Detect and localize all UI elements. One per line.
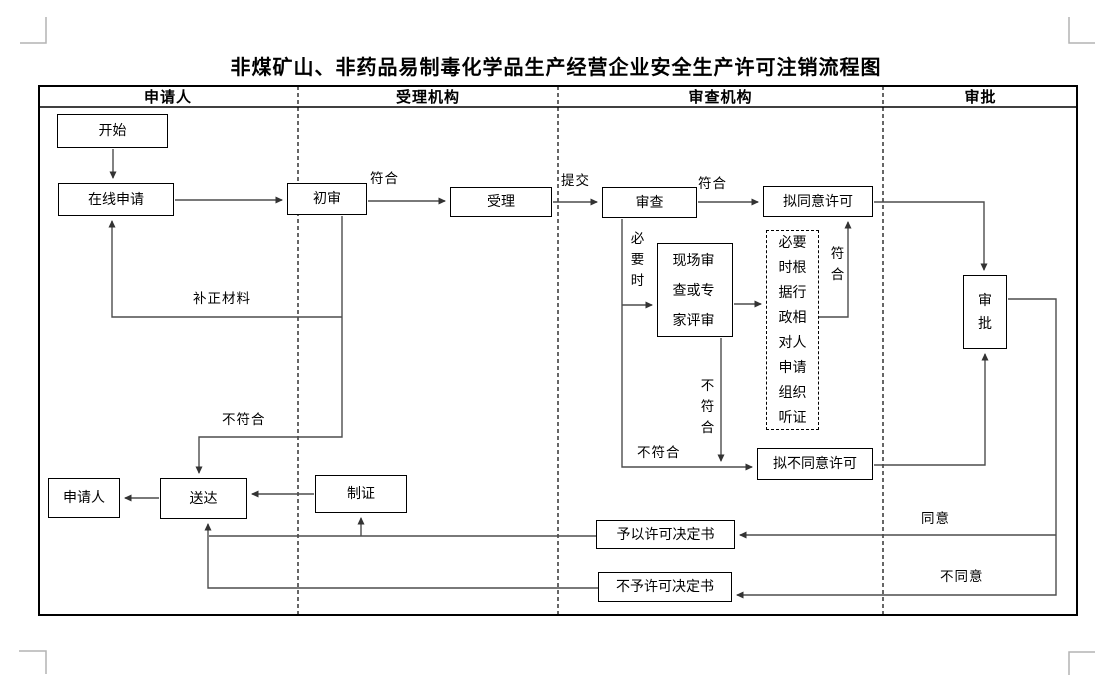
edge-label-not-conform-3: 不符合 — [222, 408, 266, 428]
node-applicant: 申请人 — [48, 478, 120, 518]
arrow-preliminary-notconform-to-deliver — [199, 216, 342, 473]
crop-mark-top-left — [20, 17, 46, 43]
edge-label-disagree: 不同意 — [940, 565, 984, 585]
node-deny-decision: 不予许可决定书 — [598, 572, 732, 602]
edge-label-submit: 提交 — [561, 169, 590, 189]
node-propose-disapprove: 拟不同意许可 — [757, 448, 873, 480]
node-hearing-label: 必要时根据行政相对人申请组织听证 — [778, 230, 808, 430]
node-make-certificate-label: 制证 — [347, 485, 375, 503]
crop-marks — [19, 17, 1095, 675]
crop-mark-bottom-right — [1069, 652, 1095, 675]
node-propose-disapprove-label: 拟不同意许可 — [773, 455, 857, 473]
node-preliminary-review: 初审 — [287, 183, 367, 215]
node-review: 审查 — [602, 187, 697, 218]
edge-label-conform-3: 符合 — [830, 243, 845, 285]
node-applicant-label: 申请人 — [63, 489, 105, 507]
edge-label-agree: 同意 — [921, 507, 950, 527]
node-approve-label: 审批 — [978, 289, 993, 335]
node-approve: 审批 — [963, 275, 1007, 349]
node-deliver-label: 送达 — [190, 490, 218, 508]
edge-label-conform-1: 符合 — [370, 167, 399, 187]
lane-header-applicant: 申请人 — [38, 85, 298, 107]
arrow-propose-approve-to-approve — [874, 202, 984, 270]
node-make-certificate: 制证 — [315, 475, 407, 513]
node-start-label: 开始 — [99, 122, 127, 140]
edge-label-supplement-materials: 补正材料 — [193, 287, 251, 307]
lane-header-row: 申请人 受理机构 审查机构 审批 — [38, 85, 1078, 107]
edge-label-not-conform-1: 不符合 — [700, 375, 715, 438]
arrow-deny-decision-to-deliver — [208, 524, 598, 588]
node-onsite-review-label: 现场审查或专家评审 — [673, 245, 718, 335]
node-start: 开始 — [57, 114, 168, 148]
node-accept: 受理 — [450, 187, 552, 217]
flowchart-page: 非煤矿山、非药品易制毒化学品生产经营企业安全生产许可注销流程图 申请人 受理机构… — [0, 0, 1112, 675]
node-propose-approve-label: 拟同意许可 — [783, 193, 853, 211]
node-deny-decision-label: 不予许可决定书 — [616, 578, 714, 596]
edge-label-conform-2: 符合 — [698, 172, 727, 192]
node-preliminary-review-label: 初审 — [313, 190, 341, 208]
edge-label-not-conform-2: 不符合 — [637, 441, 681, 461]
flow-arrows — [112, 149, 1056, 595]
node-onsite-review: 现场审查或专家评审 — [657, 243, 733, 337]
node-hearing: 必要时根据行政相对人申请组织听证 — [766, 230, 819, 430]
node-online-apply-label: 在线申请 — [88, 191, 144, 209]
crop-mark-top-right — [1069, 17, 1095, 43]
node-online-apply: 在线申请 — [58, 183, 174, 216]
node-review-label: 审查 — [636, 194, 664, 212]
lane-header-accepting-agency: 受理机构 — [298, 85, 558, 107]
lane-header-review-agency: 审查机构 — [558, 85, 883, 107]
node-grant-decision: 予以许可决定书 — [596, 520, 735, 549]
node-propose-approve: 拟同意许可 — [763, 186, 873, 217]
crop-mark-bottom-left — [19, 651, 46, 674]
node-deliver: 送达 — [160, 478, 247, 519]
arrow-propose-disapprove-to-approve — [874, 354, 985, 465]
lane-header-approval: 审批 — [883, 85, 1078, 107]
node-accept-label: 受理 — [487, 193, 515, 211]
edge-label-when-necessary: 必要时 — [630, 228, 645, 291]
node-grant-decision-label: 予以许可决定书 — [617, 526, 715, 544]
